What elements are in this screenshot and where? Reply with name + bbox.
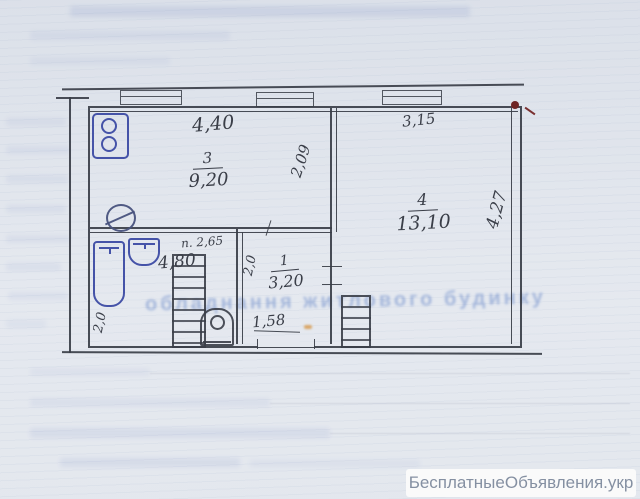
bleed-through-smudge <box>6 175 68 183</box>
wall-hatch-section <box>341 295 371 348</box>
door-opening-tick <box>322 284 342 285</box>
bleed-through-smudge <box>6 146 70 154</box>
bleed-through-smudge <box>8 292 68 300</box>
orange-dot <box>304 325 312 329</box>
faint-rule-line <box>270 403 630 404</box>
bleed-through-smudge <box>6 263 61 271</box>
room-label-hall: 1 3,20 <box>256 248 313 294</box>
bleed-through-smudge <box>30 368 150 376</box>
dim-hall-opening: 1,58 <box>251 311 286 332</box>
window <box>120 90 182 105</box>
door-opening-tick <box>257 339 258 349</box>
scanned-page: обладнання житлового будинку 4,40 3,15 2… <box>0 0 640 499</box>
sink-icon <box>106 204 136 232</box>
door-opening-gap <box>258 342 314 347</box>
bleed-through-smudge <box>30 57 170 65</box>
bleed-through-smudge <box>6 205 66 213</box>
dim-top-width-right: 3,15 <box>401 109 436 130</box>
room-hall-number: 1 <box>269 252 299 272</box>
wall-middle-vertical <box>330 108 332 344</box>
building-wall-step <box>56 97 89 99</box>
door-opening-tick <box>314 339 315 349</box>
red-tick-mark <box>525 107 536 116</box>
red-corner-mark <box>511 101 519 109</box>
room-kitchen-number: 3 <box>192 148 223 170</box>
bleed-through-smudge <box>6 320 46 328</box>
bleed-through-smudge <box>70 6 470 17</box>
room-label-kitchen: 3 9,20 <box>175 146 241 192</box>
faint-rule-line <box>330 433 630 434</box>
window <box>256 92 314 107</box>
faint-rule-line <box>150 373 630 374</box>
wall-bath-hall-inner <box>242 232 243 344</box>
bleed-through-smudge <box>30 428 330 438</box>
washbasin-icon <box>128 238 160 266</box>
bleed-through-smudge <box>6 235 70 243</box>
watermark: БесплатныеОбъявления.укр <box>406 469 636 497</box>
room-living-number: 4 <box>407 189 438 212</box>
bathtub-icon <box>93 241 125 307</box>
bleed-through-smudge <box>30 31 230 40</box>
dim-top-width-left: 4,40 <box>191 111 235 137</box>
building-wall-left <box>69 97 71 353</box>
toilet-icon <box>200 308 234 346</box>
wall-room3-bottom-inner <box>90 232 332 233</box>
wall-right-inner <box>511 108 512 344</box>
bleed-through-smudge <box>6 118 66 126</box>
door-opening-tick <box>322 266 342 267</box>
room-label-living: 4 13,10 <box>387 188 459 236</box>
wall-bath-hall <box>236 229 238 344</box>
stove-icon <box>92 113 129 159</box>
bleed-through-smudge <box>60 458 240 467</box>
wall-middle-vertical-inner <box>336 108 337 232</box>
dim-bath-area: 4,80 <box>157 250 196 273</box>
bleed-through-smudge <box>30 398 270 407</box>
window <box>382 90 442 105</box>
wall-top-inner <box>90 111 518 112</box>
dim-ceiling-height: п. 2,65 <box>181 234 224 251</box>
room-kitchen-area: 9,20 <box>176 168 241 192</box>
room-living-area: 13,10 <box>388 210 459 236</box>
bleed-through-smudge <box>250 460 420 467</box>
building-wall-bottom <box>62 351 542 355</box>
